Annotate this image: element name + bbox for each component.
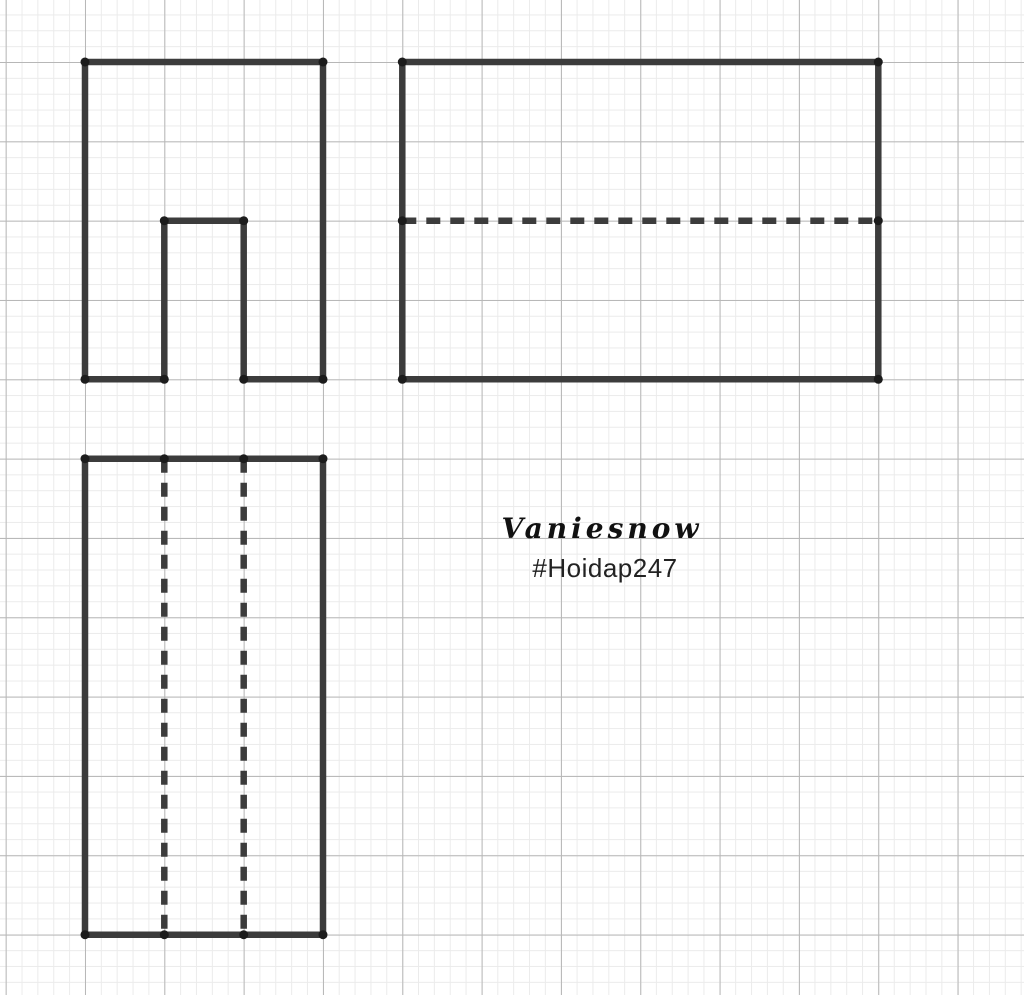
top-view xyxy=(81,454,328,939)
vertex-point xyxy=(319,375,328,384)
vertex-point xyxy=(239,454,248,463)
vertex-point xyxy=(319,930,328,939)
vertex-point xyxy=(874,375,883,384)
vertex-point xyxy=(398,375,407,384)
watermark-hashtag: #Hoidap247 xyxy=(532,553,677,584)
vertex-point xyxy=(81,930,90,939)
visible-edge-outline xyxy=(402,62,878,379)
vertex-point xyxy=(239,375,248,384)
graphics-canvas: Vaniesnow #Hoidap247 xyxy=(0,0,1024,995)
orthographic-projection-drawing xyxy=(0,0,1024,995)
vertex-point xyxy=(874,58,883,67)
vertex-point xyxy=(874,216,883,225)
vertex-point xyxy=(398,216,407,225)
vertex-point xyxy=(239,930,248,939)
vertex-point xyxy=(160,454,169,463)
vertex-point xyxy=(81,375,90,384)
watermark-title: Vaniesnow xyxy=(501,512,702,545)
visible-edge-outline xyxy=(85,459,323,935)
vertex-point xyxy=(81,58,90,67)
front-view xyxy=(81,58,328,384)
side-view xyxy=(398,58,883,384)
vertex-point xyxy=(160,930,169,939)
vertex-point xyxy=(319,454,328,463)
vertex-point xyxy=(160,375,169,384)
vertex-point xyxy=(398,58,407,67)
vertex-point xyxy=(160,216,169,225)
vertex-point xyxy=(239,216,248,225)
vertex-point xyxy=(81,454,90,463)
visible-edge-outline xyxy=(85,62,323,379)
vertex-point xyxy=(319,58,328,67)
